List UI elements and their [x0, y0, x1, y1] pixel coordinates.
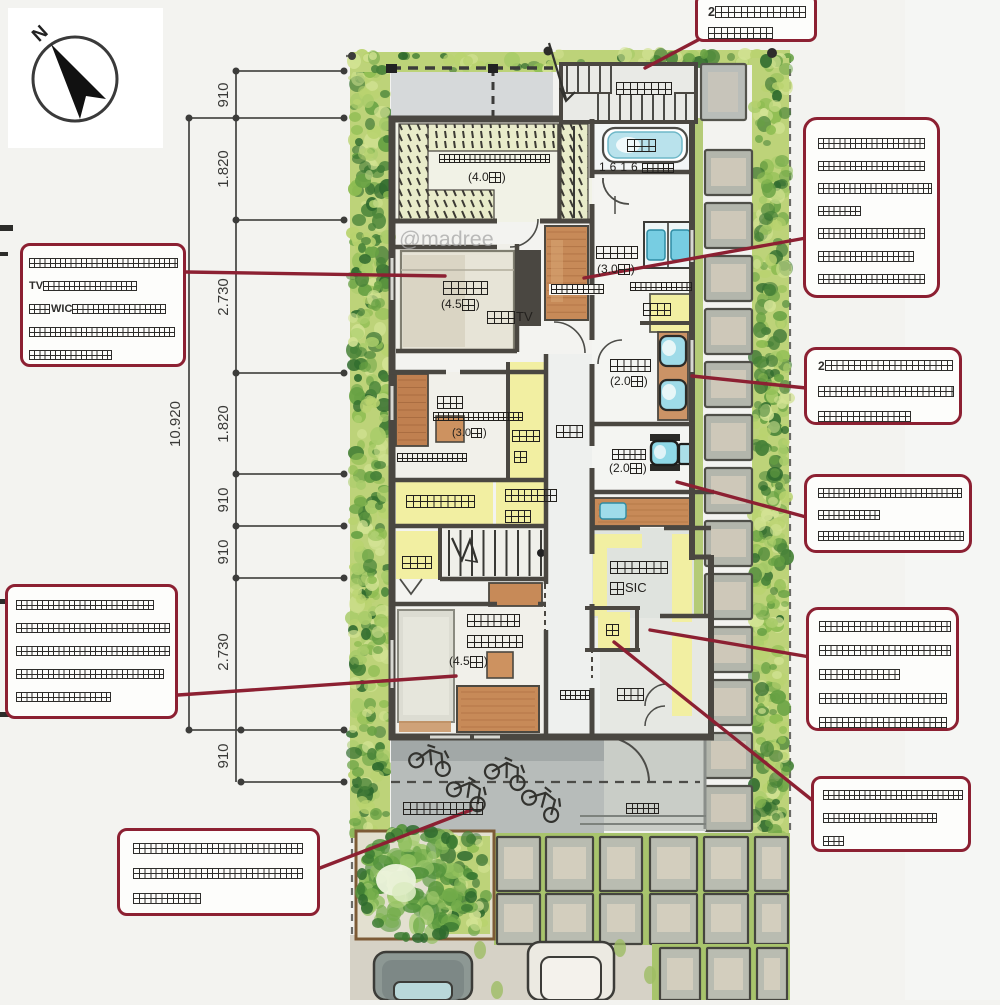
- svg-text:910: 910: [215, 743, 232, 768]
- svg-text:910: 910: [215, 539, 232, 564]
- svg-text:1.820: 1.820: [215, 150, 232, 188]
- svg-text:10.920: 10.920: [167, 401, 184, 447]
- svg-text:910: 910: [215, 82, 232, 107]
- svg-text:2.730: 2.730: [215, 633, 232, 671]
- svg-text:2.730: 2.730: [215, 278, 232, 316]
- svg-text:@madree: @madree: [399, 227, 494, 251]
- svg-text:1.820: 1.820: [215, 405, 232, 443]
- svg-text:910: 910: [215, 487, 232, 512]
